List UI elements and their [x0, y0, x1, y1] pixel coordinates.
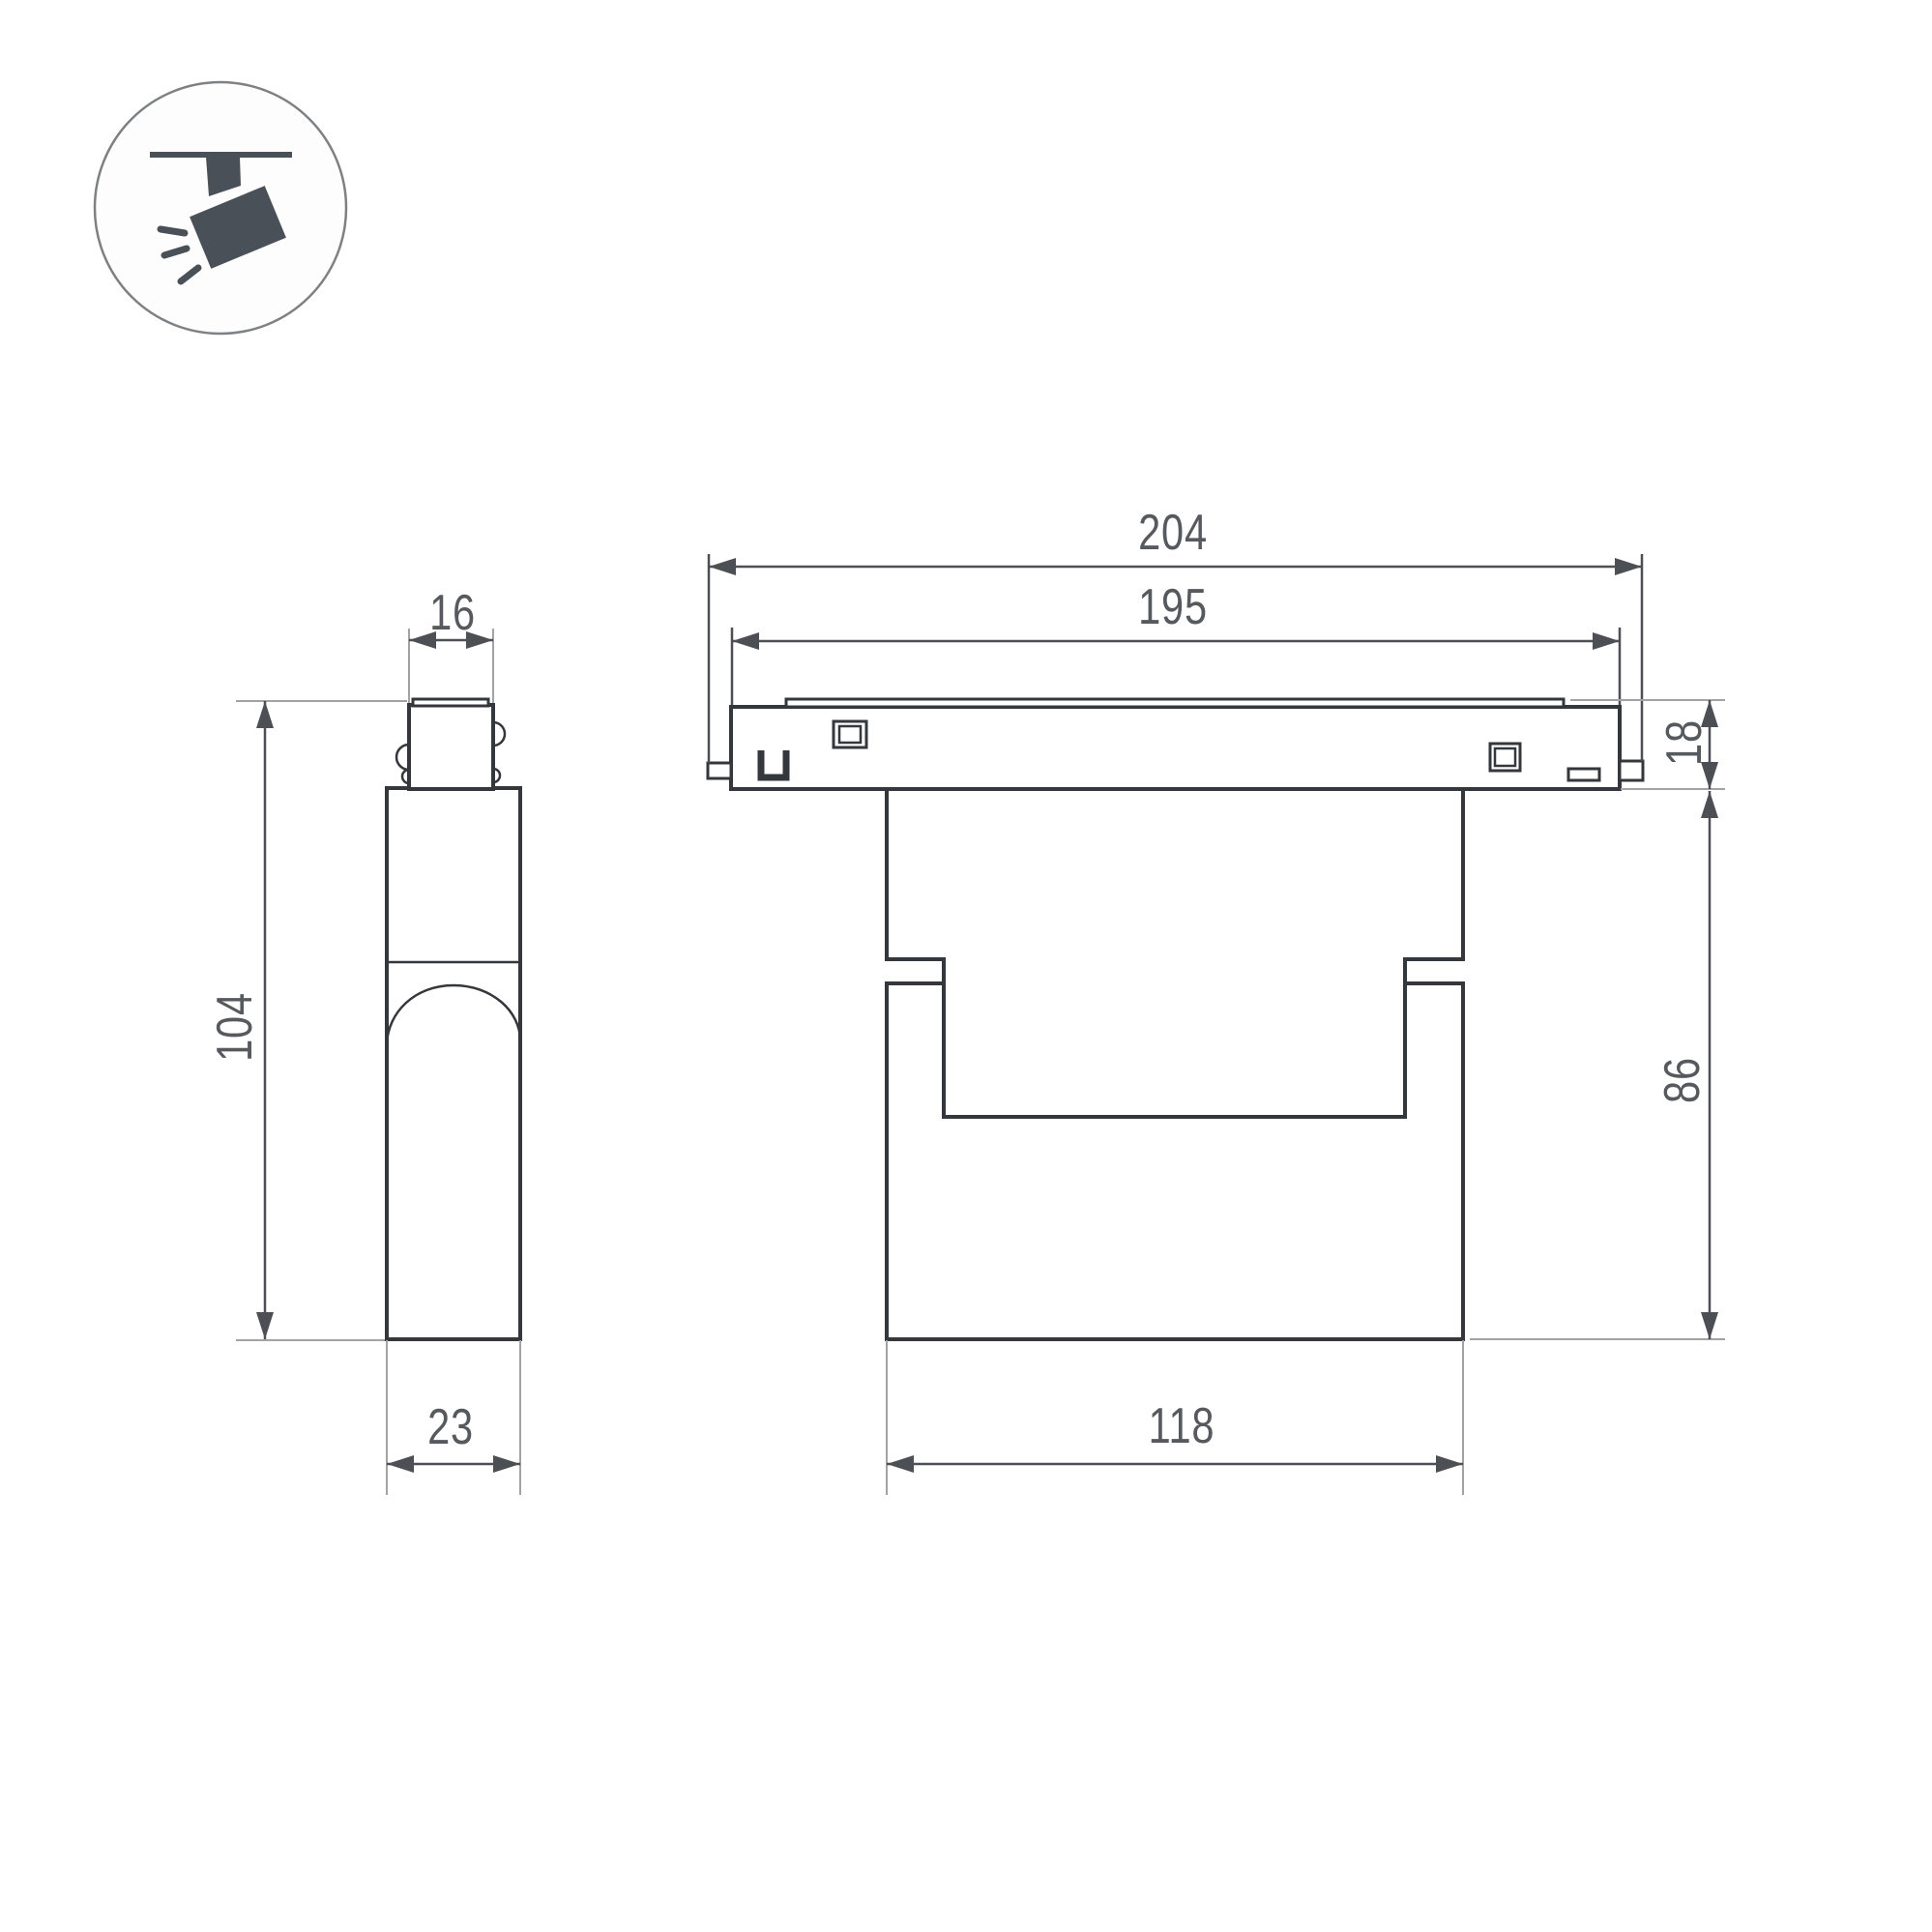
dim-label-track-height: 18: [1655, 719, 1713, 766]
icon-light-ray: [161, 229, 185, 233]
front-rail-right-tab: [1620, 761, 1643, 780]
dim-label-depth: 23: [427, 1398, 474, 1456]
side-view: [387, 699, 520, 1339]
front-body-recess: [944, 983, 1405, 1117]
dim-label-head-width: 118: [1149, 1397, 1215, 1455]
front-rail-top-plate: [786, 699, 1564, 707]
dim-label-overall-length: 204: [1138, 504, 1208, 562]
side-track-connector: [409, 705, 493, 789]
track-spotlight-icon: [95, 82, 346, 334]
front-view: [708, 699, 1643, 1339]
dimension-195: [732, 628, 1620, 705]
dim-label-side-height: 104: [206, 992, 264, 1062]
dim-label-body-height: 86: [1654, 1057, 1712, 1103]
dim-label-track-length: 195: [1138, 578, 1208, 636]
technical-drawing: [0, 0, 1932, 1932]
front-body-outline: [887, 789, 1463, 1339]
side-connector-cap: [413, 699, 488, 706]
front-rail-slot: [1568, 769, 1599, 780]
front-rail-left-tab: [708, 763, 731, 778]
dim-label-connector-width: 16: [429, 584, 476, 642]
side-body: [387, 788, 520, 1339]
dimension-drawing-canvas: 204 195 16 104 23 118 18 86: [0, 0, 1932, 1932]
